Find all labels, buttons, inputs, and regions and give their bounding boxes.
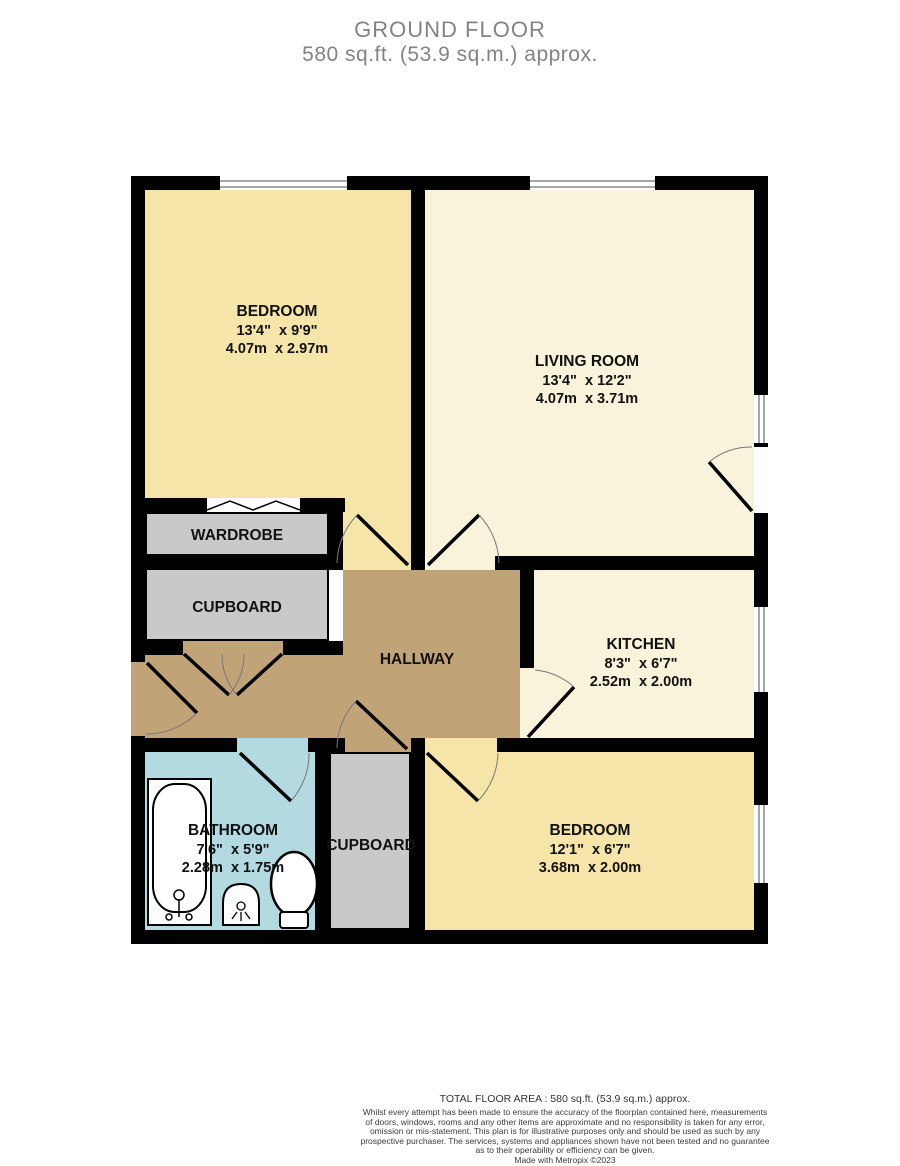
plan-footer: TOTAL FLOOR AREA : 580 sq.ft. (53.9 sq.m… <box>333 1093 797 1166</box>
svg-text:3.68m x 2.00m: 3.68m x 2.00m <box>539 860 641 876</box>
svg-text:8'3" x 6'7": 8'3" x 6'7" <box>604 656 677 672</box>
svg-text:2.28m x 1.75m: 2.28m x 1.75m <box>182 860 284 876</box>
window <box>754 607 768 692</box>
svg-text:BEDROOM: BEDROOM <box>550 822 631 839</box>
room-label-bedroom-2: BEDROOM 12'1" x 6'7" 3.68m x 2.00m <box>539 822 641 876</box>
entrance-doorway <box>131 662 145 736</box>
wardrobe-bifold-doors <box>207 498 300 512</box>
room-label-hallway: HALLWAY <box>380 651 455 668</box>
svg-text:BEDROOM: BEDROOM <box>237 303 318 320</box>
svg-text:CUPBOARD: CUPBOARD <box>326 837 416 854</box>
window <box>754 805 768 883</box>
svg-text:13'4" x 9'9": 13'4" x 9'9" <box>236 323 317 339</box>
room-label-cupboard-lower: CUPBOARD <box>326 837 416 854</box>
bathroom-doorway <box>237 738 308 752</box>
kitchen-floor <box>534 570 754 738</box>
svg-text:BATHROOM: BATHROOM <box>188 822 278 839</box>
svg-text:13'4" x 12'2": 13'4" x 12'2" <box>542 373 631 389</box>
credit-line: Made with Metropix ©2023 <box>333 1156 797 1166</box>
svg-text:KITCHEN: KITCHEN <box>607 636 676 653</box>
floor-plan: BEDROOM 13'4" x 9'9" 4.07m x 2.97m LIVIN… <box>0 0 900 1166</box>
bedroom-2-doorway <box>425 738 497 752</box>
room-label-cupboard-hall: CUPBOARD <box>192 599 282 616</box>
svg-text:2.52m x 2.00m: 2.52m x 2.00m <box>590 674 692 690</box>
kitchen-doorway <box>520 668 534 738</box>
svg-text:4.07m x 3.71m: 4.07m x 3.71m <box>536 391 638 407</box>
svg-text:4.07m x 2.97m: 4.07m x 2.97m <box>226 341 328 357</box>
room-label-bedroom-1: BEDROOM 13'4" x 9'9" 4.07m x 2.97m <box>226 303 328 357</box>
svg-text:WARDROBE: WARDROBE <box>191 527 283 544</box>
svg-text:CUPBOARD: CUPBOARD <box>192 599 282 616</box>
svg-text:7'6" x 5'9": 7'6" x 5'9" <box>196 842 269 858</box>
room-label-bathroom: BATHROOM 7'6" x 5'9" 2.28m x 1.75m <box>182 822 284 876</box>
total-floor-area: TOTAL FLOOR AREA : 580 sq.ft. (53.9 sq.m… <box>333 1093 797 1105</box>
svg-text:12'1" x 6'7": 12'1" x 6'7" <box>549 842 630 858</box>
bedroom-2-floor <box>425 752 754 930</box>
sink <box>223 884 259 925</box>
room-label-living-room: LIVING ROOM 13'4" x 12'2" 4.07m x 3.71m <box>535 353 639 407</box>
svg-text:LIVING ROOM: LIVING ROOM <box>535 353 639 370</box>
window <box>754 395 768 443</box>
window <box>220 176 347 190</box>
svg-text:HALLWAY: HALLWAY <box>380 651 455 668</box>
window <box>530 176 655 190</box>
room-label-wardrobe: WARDROBE <box>191 527 283 544</box>
